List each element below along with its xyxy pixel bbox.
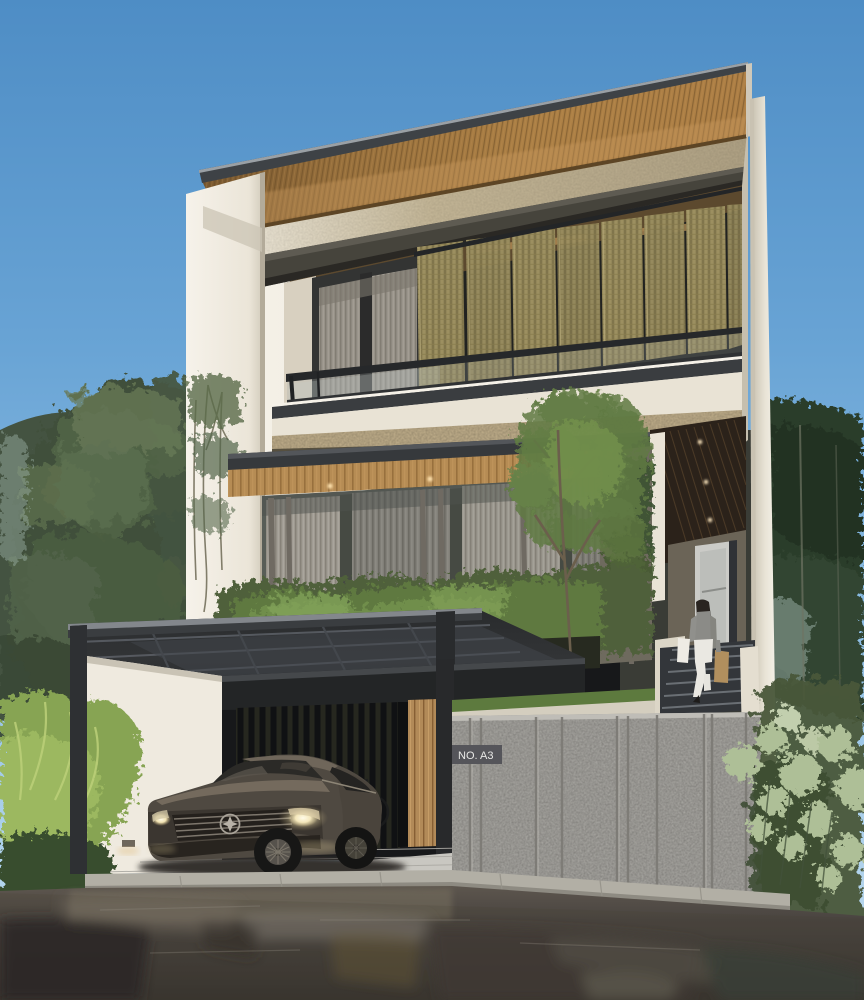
svg-text:NO. A3: NO. A3: [458, 750, 493, 762]
